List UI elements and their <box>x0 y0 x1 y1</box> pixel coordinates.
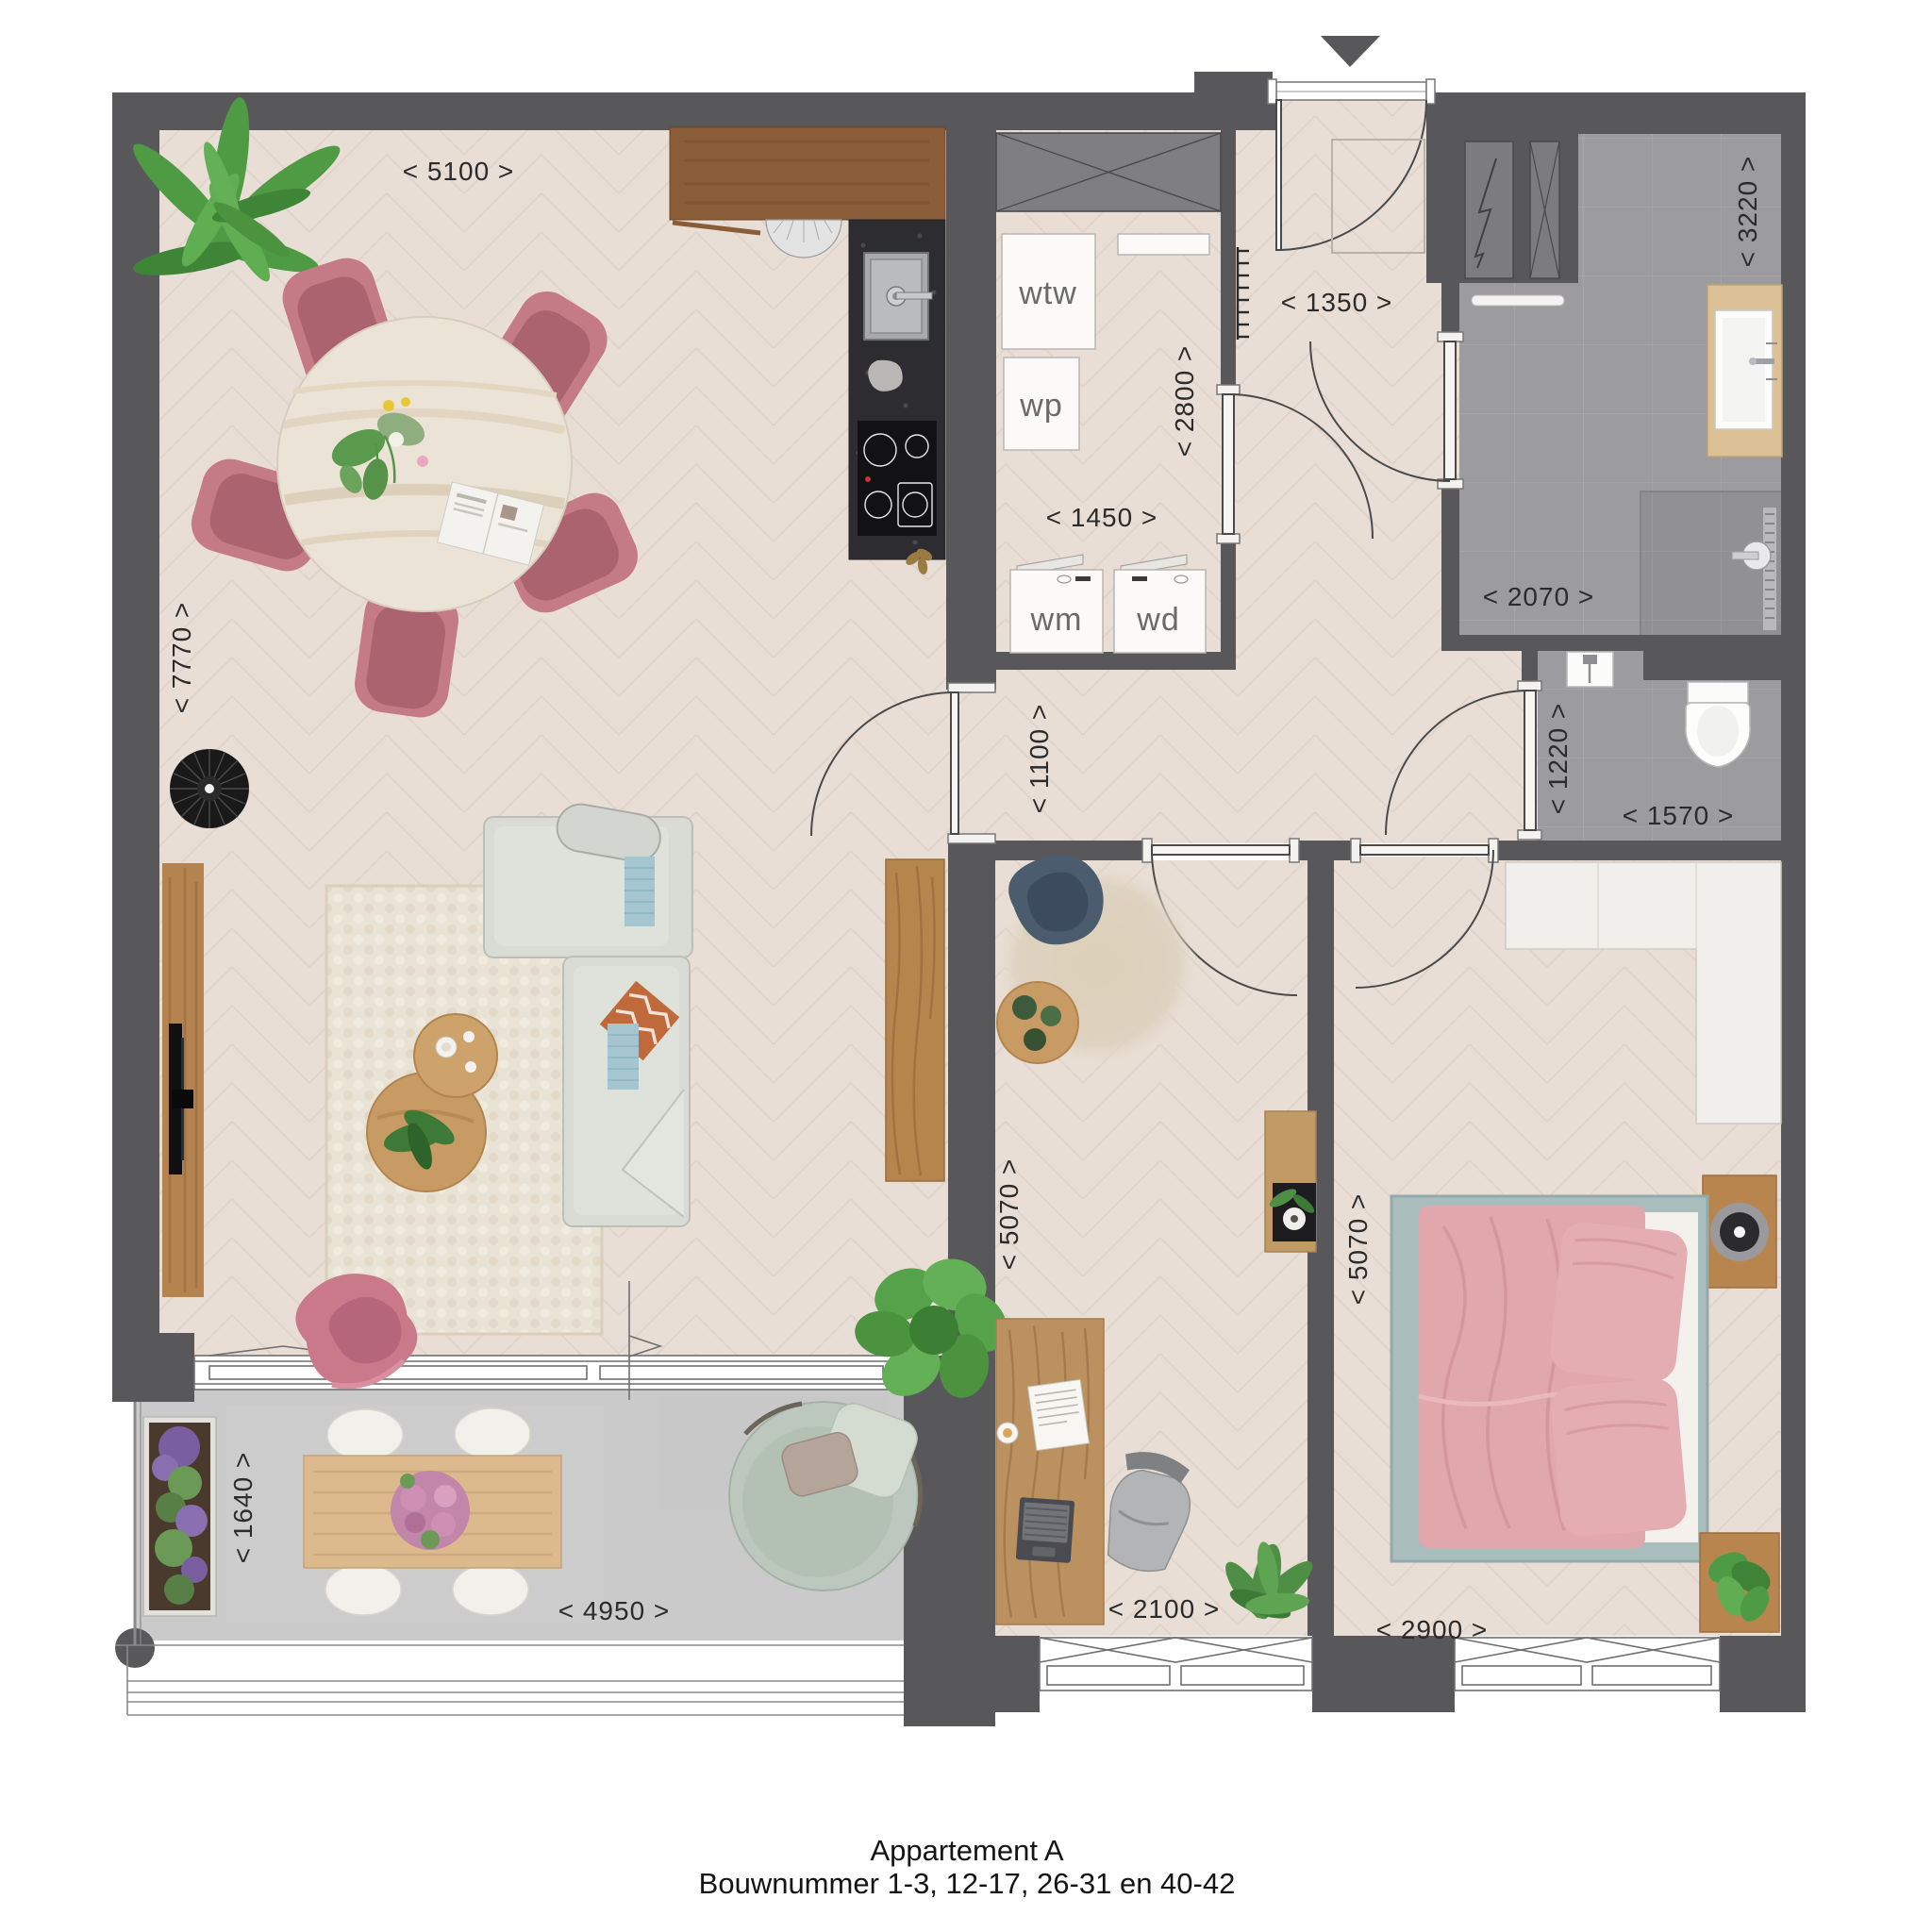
svg-text:< 1450 >: < 1450 > <box>1046 503 1158 532</box>
svg-text:< 1220 >: < 1220 > <box>1543 703 1573 815</box>
svg-text:wd: wd <box>1136 602 1179 638</box>
svg-text:< 7770 >: < 7770 > <box>167 602 196 714</box>
svg-text:wp: wp <box>1019 388 1062 424</box>
svg-text:wm: wm <box>1030 602 1083 638</box>
svg-text:< 5100 >: < 5100 > <box>403 157 515 186</box>
svg-text:< 1100 >: < 1100 > <box>1024 704 1054 813</box>
svg-text:< 5070 >: < 5070 > <box>994 1158 1024 1271</box>
svg-text:Appartement A: Appartement A <box>870 1834 1063 1867</box>
svg-text:< 2100 >: < 2100 > <box>1108 1594 1221 1624</box>
svg-text:< 1640 >: < 1640 > <box>228 1452 258 1564</box>
svg-text:< 2800 >: < 2800 > <box>1170 345 1199 458</box>
svg-text:wtw: wtw <box>1018 275 1077 311</box>
svg-text:< 4950 >: < 4950 > <box>558 1596 671 1625</box>
svg-text:< 1570 >: < 1570 > <box>1623 801 1735 830</box>
svg-text:< 2070 >: < 2070 > <box>1483 582 1595 611</box>
svg-text:< 3220 >: < 3220 > <box>1733 156 1762 268</box>
svg-text:< 2900 >: < 2900 > <box>1376 1615 1489 1644</box>
svg-text:< 1350 >: < 1350 > <box>1281 288 1393 317</box>
svg-text:Bouwnummer 1-3, 12-17, 26-31 e: Bouwnummer 1-3, 12-17, 26-31 en 40-42 <box>699 1867 1236 1900</box>
svg-text:< 5070 >: < 5070 > <box>1343 1193 1373 1306</box>
